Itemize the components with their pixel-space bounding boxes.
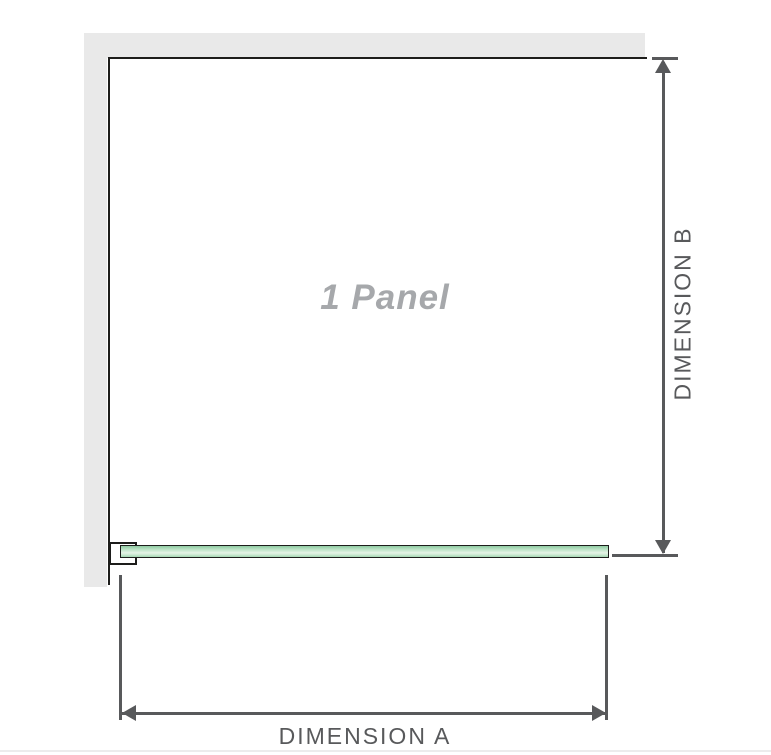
dimension-b-line — [662, 62, 665, 553]
dimension-b-label: DIMENSION B — [671, 214, 696, 414]
page-divider — [0, 750, 771, 752]
dimension-a-left-extension-line — [119, 575, 122, 720]
wall-edge-top-line — [108, 57, 647, 59]
glass-panel — [120, 545, 609, 558]
panel-count-label: 1 Panel — [235, 276, 535, 320]
arrow-down-icon — [655, 540, 671, 554]
arrow-up-icon — [655, 59, 671, 73]
arrow-left-icon — [122, 705, 136, 721]
dimension-a-line — [122, 712, 606, 715]
wall-edge-left-line — [108, 57, 110, 585]
arrow-right-icon — [592, 705, 606, 721]
dimension-b-bottom-tick — [612, 554, 678, 557]
shower-screen-diagram: 1 Panel DIMENSION B DIMENSION A — [0, 0, 771, 755]
wall-top-fill — [84, 33, 645, 58]
wall-left-fill — [84, 33, 107, 587]
dimension-a-label: DIMENSION A — [265, 724, 465, 749]
dimension-a-right-extension-line — [605, 575, 608, 720]
